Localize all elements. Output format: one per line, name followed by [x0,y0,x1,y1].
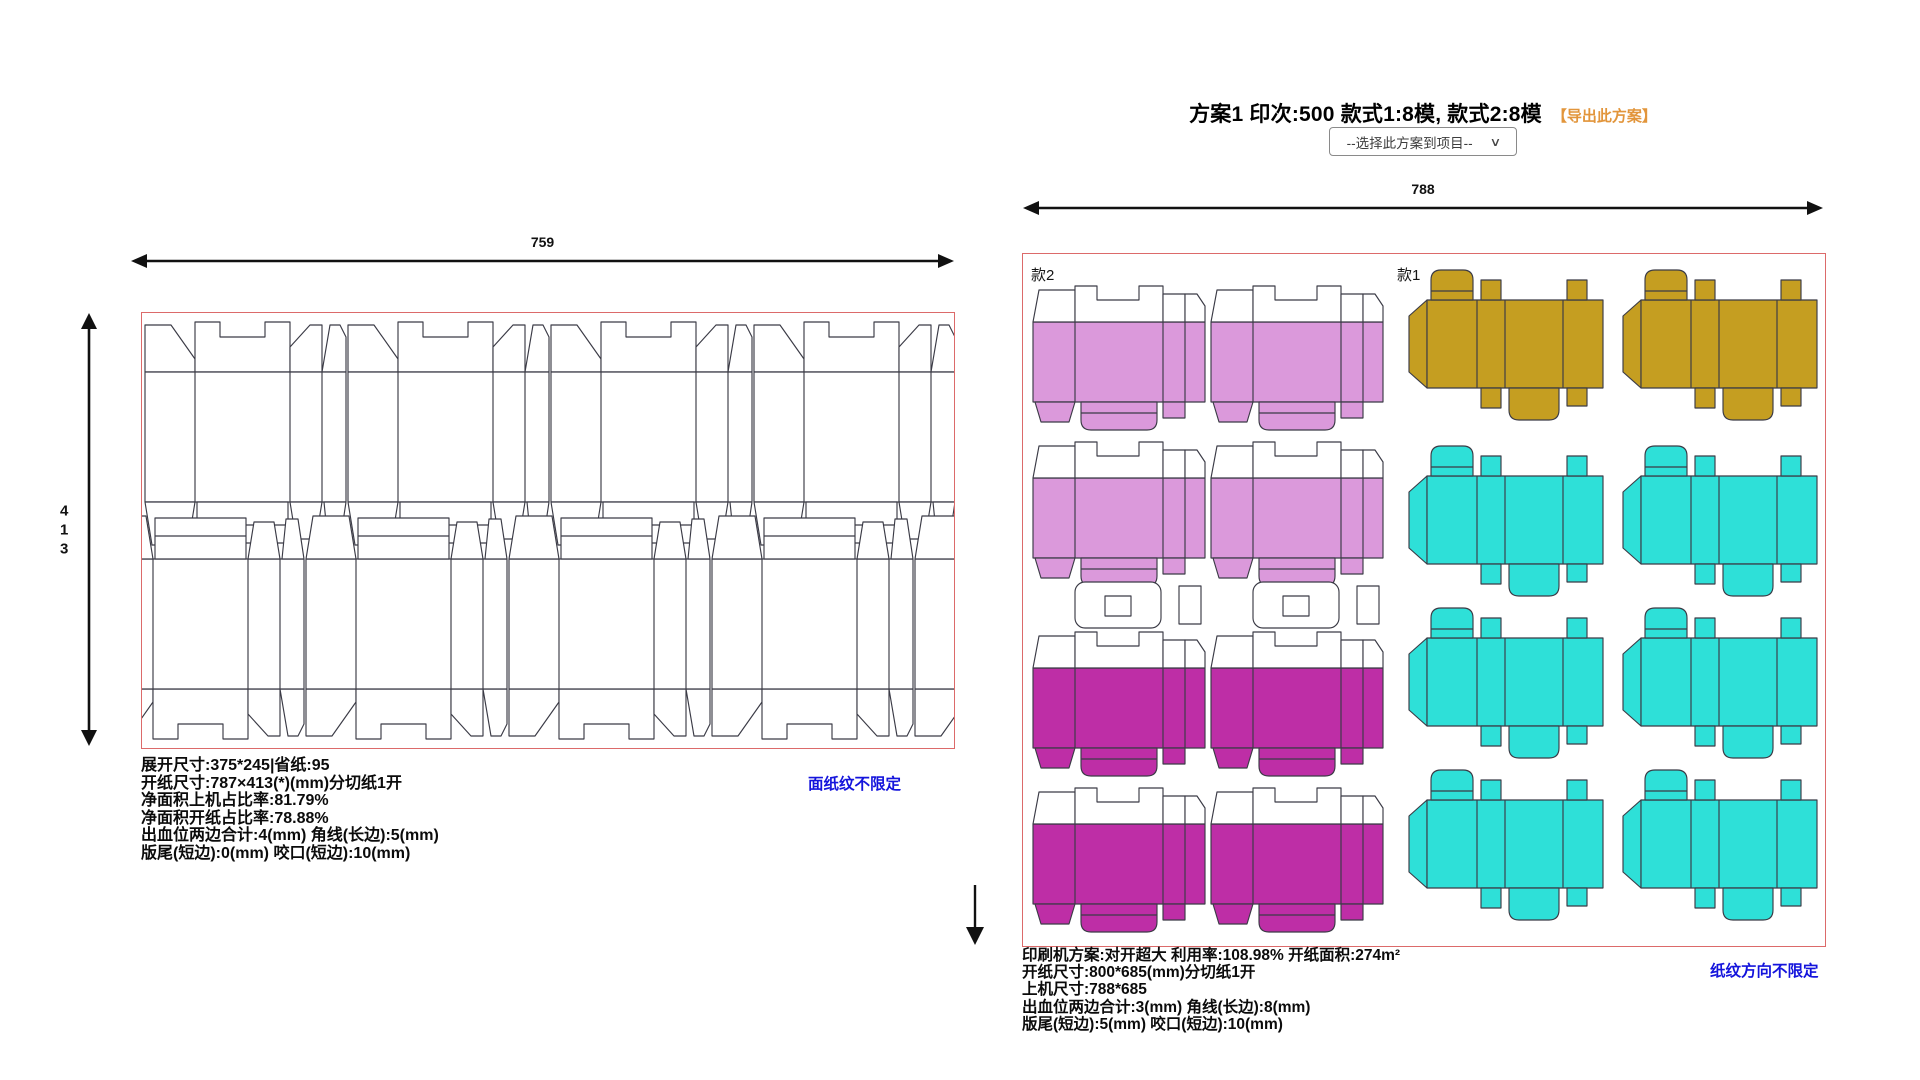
interlock-flaps [1075,582,1379,628]
face-paper-blanks-bottom-row [142,516,954,739]
info-line: 上机尺寸:788*685 [1022,981,1400,998]
print-layout-dielines [1023,254,1825,946]
style1-label: 款1 [1397,264,1420,285]
info-line: 出血位两边合计:3(mm) 角线(长边):8(mm) [1022,999,1400,1016]
scheme-title: 方案1 印次:500 款式1:8模, 款式2:8模 [1189,98,1542,128]
horizontal-arrow-icon [1022,198,1824,216]
right-info-block: 印刷机方案:对开超大 利用率:108.98% 开纸面积:274m² 开纸尺寸:8… [1022,947,1400,1033]
scheme-header: 方案1 印次:500 款式1:8模, 款式2:8模 【导出此方案】 [1022,98,1824,128]
info-line: 版尾(短边):5(mm) 咬口(短边):10(mm) [1022,1016,1400,1033]
height-digit: 1 [60,522,68,537]
face-grain-link[interactable]: 面纸纹不限定 [808,772,901,794]
face-paper-blanks-top-row [145,322,954,545]
paper-grain-link[interactable]: 纸纹方向不限定 [1710,959,1819,981]
style1-cyan-blanks [1409,446,1817,920]
apply-scheme-select[interactable]: --选择此方案到项目-- ∨ [1329,127,1517,156]
select-placeholder: --选择此方案到项目-- [1347,132,1473,152]
height-digit: 4 [60,503,68,518]
info-line: 净面积上机占比率:81.79% [141,792,439,810]
left-width-dimension: 759 [130,234,955,269]
left-height-dimension: 4 1 3 [60,312,100,747]
height-digit: 3 [60,541,68,556]
vertical-arrow-icon [78,312,100,747]
print-layout-canvas: 款2 款1 [1022,253,1826,947]
info-line: 展开尺寸:375*245|省纸:95 [141,757,439,775]
info-line: 版尾(短边):0(mm) 咬口(短边):10(mm) [141,845,439,863]
info-line: 净面积开纸占比率:78.88% [141,810,439,828]
info-line: 开纸尺寸:800*685(mm)分切纸1开 [1022,964,1400,981]
info-line: 出血位两边合计:4(mm) 角线(长边):5(mm) [141,827,439,845]
imposition-plan-page: 759 4 1 3 [0,0,1920,1080]
horizontal-arrow-icon [130,251,955,269]
left-info-block: 展开尺寸:375*245|省纸:95 开纸尺寸:787×413(*)(mm)分切… [141,757,439,863]
left-height-value: 4 1 3 [60,503,68,556]
right-width-dimension: 788 [1022,181,1824,216]
info-line: 开纸尺寸:787×413(*)(mm)分切纸1开 [141,775,439,793]
style2-plum-blanks [1033,286,1383,586]
export-scheme-link[interactable]: 【导出此方案】 [1552,105,1657,126]
style2-magenta-blanks [1033,632,1383,932]
grain-direction-arrow-icon [962,883,988,947]
left-width-value: 759 [531,234,554,250]
style2-label: 款2 [1031,264,1054,285]
style1-gold-blanks [1409,270,1817,420]
face-paper-dielines [142,313,954,748]
right-width-value: 788 [1411,181,1434,197]
chevron-down-icon: ∨ [1489,135,1501,149]
face-paper-layout-canvas [141,312,955,749]
scheme-select-row: --选择此方案到项目-- ∨ [1022,127,1824,156]
info-line: 印刷机方案:对开超大 利用率:108.98% 开纸面积:274m² [1022,947,1400,964]
